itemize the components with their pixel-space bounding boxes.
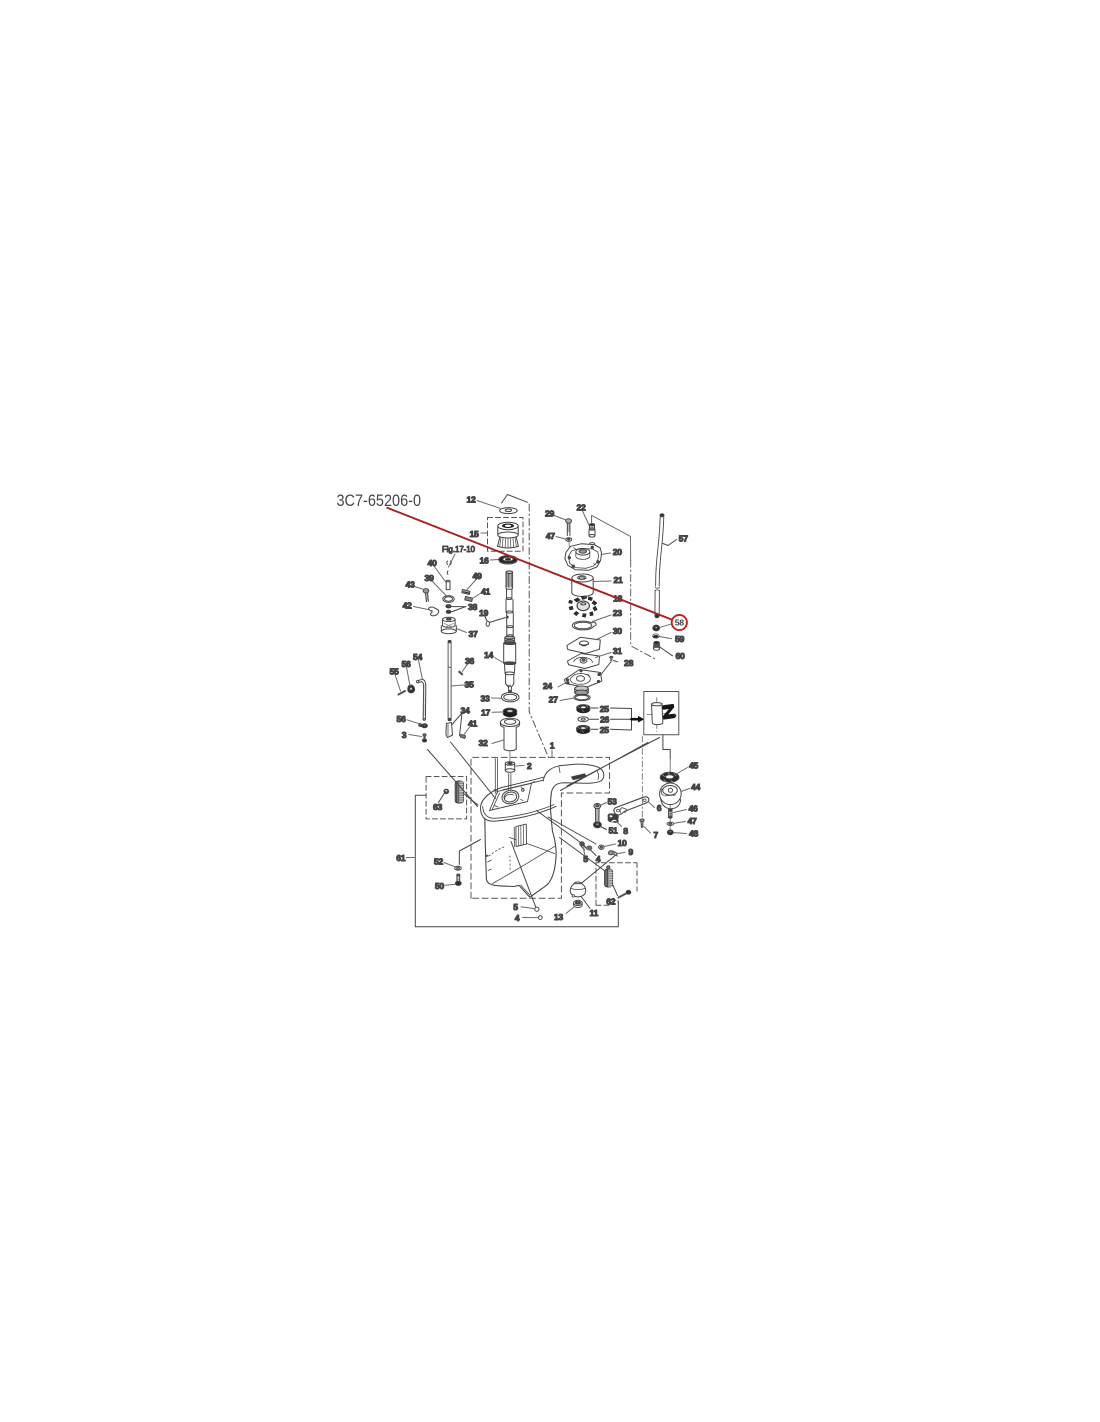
svg-text:41: 41	[468, 719, 478, 729]
svg-text:44: 44	[691, 782, 701, 792]
svg-text:4: 4	[515, 913, 520, 923]
svg-text:61: 61	[396, 853, 406, 863]
svg-text:63: 63	[433, 802, 443, 812]
svg-text:46: 46	[688, 804, 698, 814]
svg-text:1: 1	[550, 741, 555, 751]
svg-text:19: 19	[479, 608, 489, 618]
svg-text:51: 51	[608, 826, 618, 836]
svg-text:14: 14	[484, 650, 494, 660]
svg-text:33: 33	[480, 693, 490, 703]
svg-text:47: 47	[687, 816, 697, 826]
svg-text:29: 29	[545, 509, 555, 519]
svg-text:17: 17	[481, 708, 491, 718]
svg-text:5: 5	[513, 902, 518, 912]
svg-text:26: 26	[600, 715, 610, 725]
svg-text:27: 27	[549, 695, 559, 705]
svg-text:58: 58	[675, 618, 685, 628]
svg-text:12: 12	[466, 495, 476, 505]
svg-text:57: 57	[679, 534, 689, 544]
svg-text:22: 22	[576, 503, 586, 513]
svg-text:23: 23	[613, 608, 623, 618]
svg-text:60: 60	[675, 651, 685, 661]
svg-text:50: 50	[435, 881, 445, 891]
svg-text:25: 25	[600, 725, 610, 735]
svg-text:34: 34	[460, 706, 470, 716]
svg-text:3C7-65206-0: 3C7-65206-0	[337, 491, 422, 510]
svg-text:Fig.17-10: Fig.17-10	[442, 545, 476, 554]
svg-text:45: 45	[689, 761, 699, 771]
svg-text:39: 39	[424, 573, 434, 583]
svg-text:52: 52	[434, 857, 444, 867]
svg-text:16: 16	[479, 556, 489, 566]
svg-text:21: 21	[613, 575, 623, 585]
svg-text:36: 36	[465, 656, 475, 666]
svg-text:62: 62	[606, 897, 616, 907]
svg-text:56: 56	[401, 659, 411, 669]
svg-text:8: 8	[623, 826, 628, 836]
svg-text:20: 20	[613, 547, 623, 557]
svg-text:43: 43	[405, 580, 415, 590]
svg-text:7: 7	[653, 830, 658, 840]
svg-text:25: 25	[600, 704, 610, 714]
svg-text:53: 53	[607, 797, 617, 807]
svg-text:59: 59	[675, 634, 685, 644]
svg-text:37: 37	[468, 629, 478, 639]
svg-text:10: 10	[617, 838, 627, 848]
svg-text:40: 40	[427, 558, 437, 568]
svg-text:11: 11	[590, 908, 599, 918]
svg-text:31: 31	[613, 646, 623, 656]
svg-text:32: 32	[478, 738, 488, 748]
svg-text:30: 30	[613, 626, 623, 636]
svg-text:55: 55	[389, 667, 399, 677]
svg-text:13: 13	[554, 912, 564, 922]
svg-text:41: 41	[481, 587, 491, 597]
svg-text:35: 35	[464, 680, 474, 690]
svg-text:56: 56	[396, 714, 406, 724]
svg-text:38: 38	[468, 602, 478, 612]
svg-text:47: 47	[546, 531, 556, 541]
svg-text:9: 9	[628, 847, 633, 857]
svg-text:42: 42	[402, 601, 412, 611]
svg-text:54: 54	[413, 652, 423, 662]
svg-text:2: 2	[527, 761, 532, 771]
svg-text:48: 48	[689, 829, 699, 839]
svg-text:5: 5	[583, 854, 588, 864]
svg-text:24: 24	[543, 681, 553, 691]
svg-text:49: 49	[472, 571, 482, 581]
svg-text:3: 3	[402, 730, 407, 740]
svg-text:15: 15	[469, 529, 479, 539]
svg-text:6: 6	[657, 803, 662, 813]
svg-text:28: 28	[624, 658, 634, 668]
